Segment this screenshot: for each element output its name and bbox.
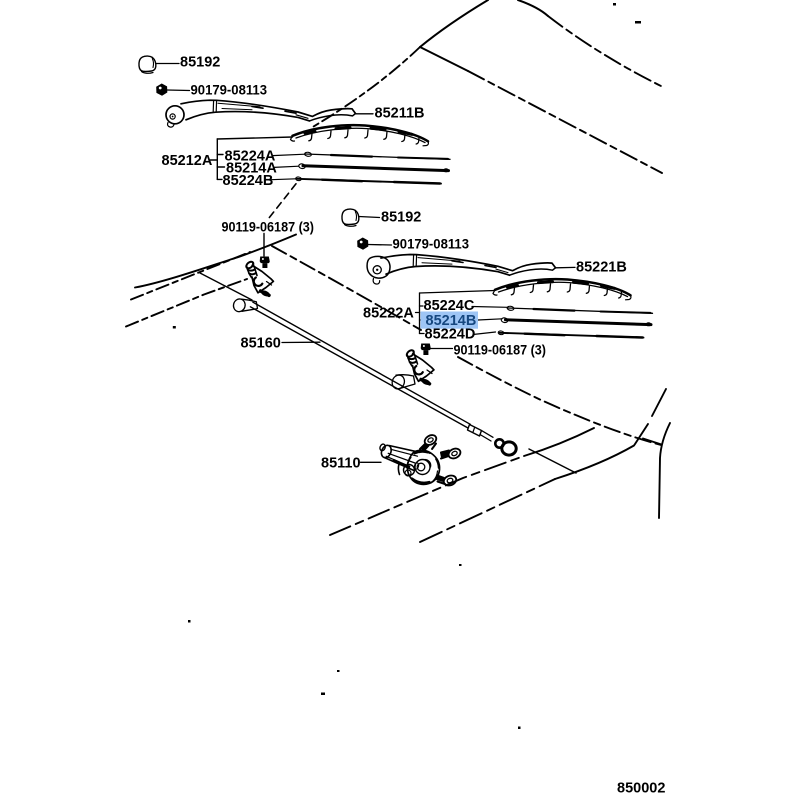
svg-text:85222A: 85222A bbox=[363, 306, 414, 322]
svg-text:85211B: 85211B bbox=[375, 106, 425, 122]
svg-text:90119-06187 (3): 90119-06187 (3) bbox=[454, 343, 547, 358]
svg-text:90179-08113: 90179-08113 bbox=[191, 83, 268, 98]
svg-text:85160: 85160 bbox=[241, 336, 281, 352]
svg-text:85221B: 85221B bbox=[576, 260, 627, 276]
svg-text:85110: 85110 bbox=[321, 456, 361, 472]
svg-text:90119-06187 (3): 90119-06187 (3) bbox=[222, 220, 315, 235]
svg-text:85224D: 85224D bbox=[425, 327, 476, 343]
svg-text:85212A: 85212A bbox=[162, 153, 213, 169]
svg-text:850002: 850002 bbox=[617, 781, 665, 797]
svg-text:85192: 85192 bbox=[180, 55, 220, 71]
svg-text:85224B: 85224B bbox=[223, 173, 274, 189]
svg-text:90179-08113: 90179-08113 bbox=[393, 237, 470, 252]
svg-text:85224C: 85224C bbox=[424, 298, 475, 314]
svg-text:85192: 85192 bbox=[381, 210, 421, 226]
